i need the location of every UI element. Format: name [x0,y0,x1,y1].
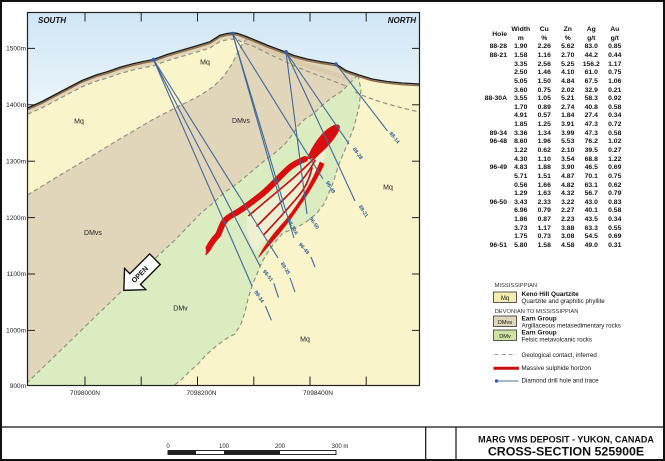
svg-text:1000m: 1000m [6,328,26,335]
svg-text:MISSISSIPPIAN: MISSISSIPPIAN [495,283,538,289]
svg-text:DMv: DMv [499,334,511,340]
svg-text:7098000N: 7098000N [70,390,100,397]
svg-text:7098400N: 7098400N [303,390,333,397]
svg-text:1100m: 1100m [7,271,26,278]
svg-text:Mq: Mq [383,185,393,192]
svg-text:SOUTH: SOUTH [38,16,66,25]
svg-text:DEVONIAN TO MISSISSIPPIAN: DEVONIAN TO MISSISSIPPIAN [495,309,579,315]
svg-text:Quartzite and graphitic phylli: Quartzite and graphitic phyllite [522,298,606,305]
svg-text:Mq: Mq [200,60,210,67]
svg-text:DMv: DMv [173,306,188,313]
svg-text:Geological contact, inferred: Geological contact, inferred [522,352,598,359]
svg-text:7098200N: 7098200N [187,390,217,397]
svg-text:900m: 900m [10,383,26,390]
svg-text:Argillaceous metasedimentary r: Argillaceous metasedimentary rocks [522,323,621,330]
svg-text:Massive sulphide horizon: Massive sulphide horizon [522,365,592,372]
svg-text:NORTH: NORTH [388,16,417,25]
svg-text:Mq: Mq [300,337,310,344]
svg-text:1200m: 1200m [6,215,26,222]
svg-text:DMvs: DMvs [84,230,102,237]
svg-text:100: 100 [219,444,230,450]
svg-text:Diamond drill hole and trace: Diamond drill hole and trace [522,378,600,385]
svg-text:1400m: 1400m [6,102,26,109]
svg-text:1300m: 1300m [6,158,26,165]
svg-text:Earn Group: Earn Group [522,330,557,337]
svg-text:CROSS-SECTION 525900E: CROSS-SECTION 525900E [488,445,644,459]
svg-text:Earn Group: Earn Group [522,316,557,323]
svg-text:Mq: Mq [501,296,509,302]
svg-text:Mq: Mq [74,119,84,126]
svg-text:Keno Hill Quartzite: Keno Hill Quartzite [522,291,580,298]
svg-text:Felsic metavolcanic rocks: Felsic metavolcanic rocks [522,337,593,344]
svg-text:0: 0 [166,444,170,450]
svg-text:200: 200 [275,444,286,450]
svg-text:DMvs: DMvs [498,320,512,326]
svg-text:MARG VMS DEPOSIT - YUKON, CANA: MARG VMS DEPOSIT - YUKON, CANADA [478,435,654,445]
svg-text:300 m: 300 m [332,444,349,450]
svg-text:1500m: 1500m [6,46,26,53]
svg-text:DMvs: DMvs [232,118,250,125]
